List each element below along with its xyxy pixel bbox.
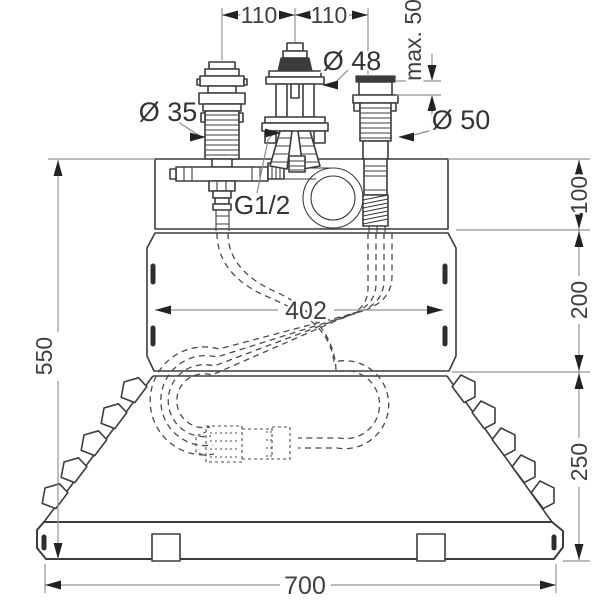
dim-label-dia50: Ø 50	[432, 105, 491, 135]
waste-connector	[196, 426, 290, 462]
thread-lines	[360, 108, 391, 138]
dim-label-100: 100	[566, 176, 592, 214]
base-foot-right	[417, 534, 445, 561]
clip-icon	[470, 397, 502, 430]
dim-label-110-left: 110	[241, 2, 278, 28]
clip-icon	[510, 451, 542, 484]
dim-label-dia35: Ø 35	[139, 97, 198, 127]
dim-label-max50: max. 50	[400, 0, 426, 81]
clip-icon	[116, 372, 148, 405]
installation-diagram: 110 110 max. 50 Ø 48 Ø 35 Ø 50 G1/2 402 …	[0, 0, 600, 600]
dim-label-dia48: Ø 48	[323, 46, 382, 76]
clip-icon	[76, 425, 108, 458]
dim-label-250: 250	[566, 443, 592, 481]
fitting-center	[262, 43, 328, 172]
clip-icon	[450, 371, 482, 404]
dim-label-thread: G1/2	[234, 190, 290, 220]
dim-label-110-right: 110	[311, 2, 348, 28]
slope-clips	[37, 371, 562, 512]
clip-icon	[56, 452, 88, 485]
base-rail	[37, 522, 563, 559]
clip-icon	[490, 424, 522, 457]
dim-label-550: 550	[31, 337, 57, 375]
carrier-structure	[37, 159, 563, 561]
dim-label-700: 700	[284, 572, 326, 600]
clip-icon	[96, 398, 128, 431]
base-foot-left	[152, 534, 180, 561]
dim-label-200: 200	[566, 281, 592, 319]
dim-label-402: 402	[285, 297, 327, 325]
clip-icon	[37, 478, 69, 511]
clip-icon	[529, 477, 561, 510]
